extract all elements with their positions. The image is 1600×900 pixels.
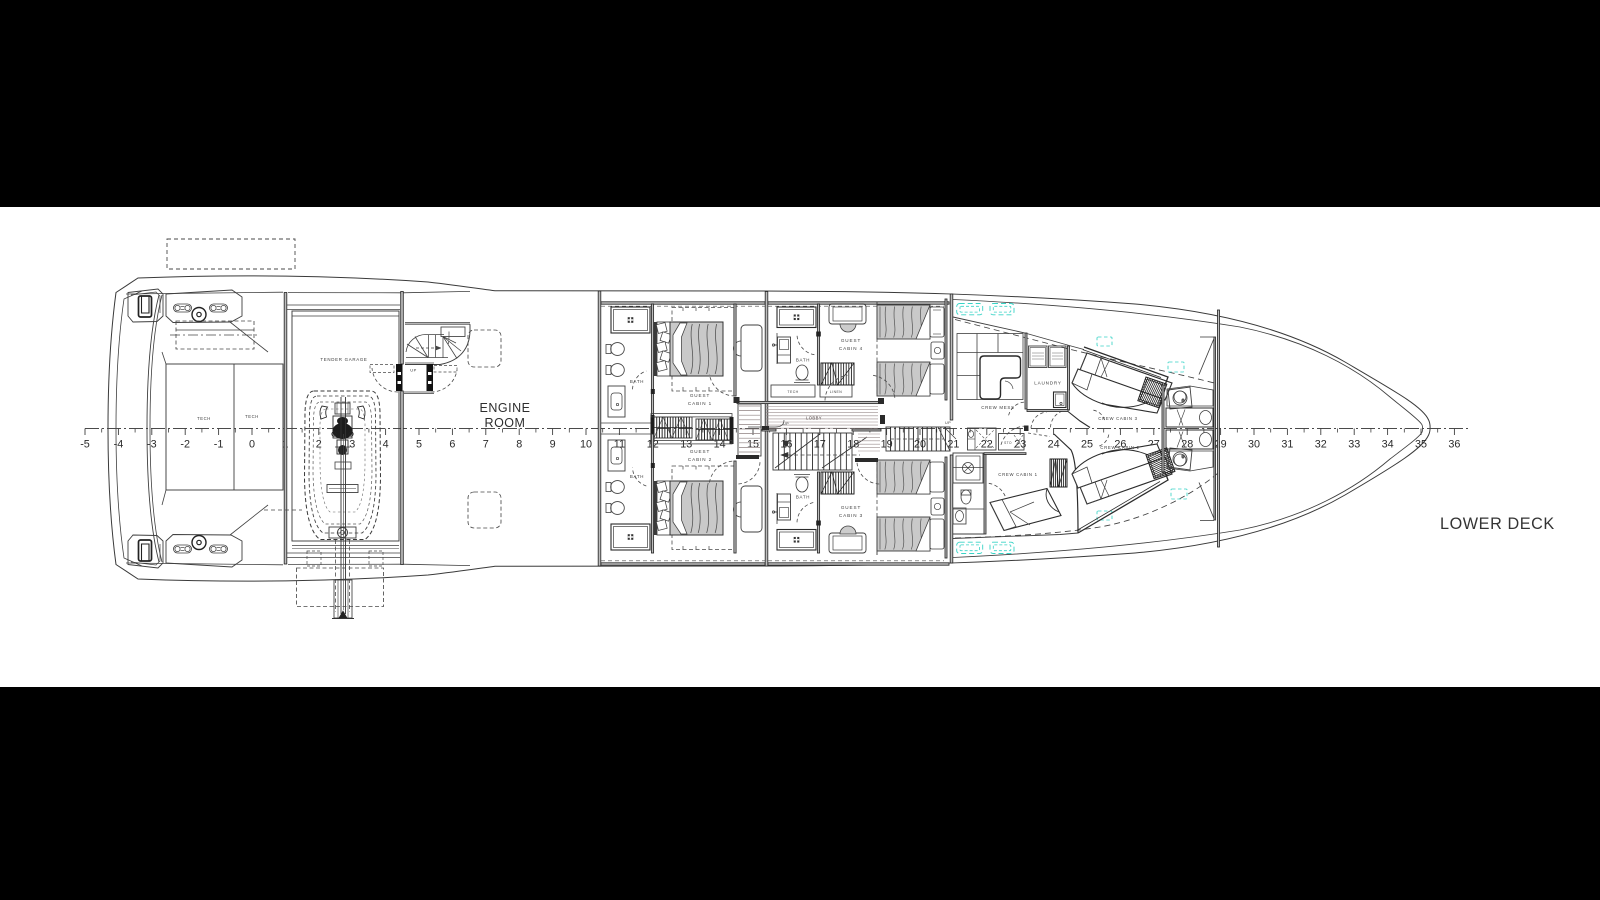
- svg-text:CABIN 4: CABIN 4: [839, 346, 863, 351]
- svg-text:35: 35: [1415, 439, 1427, 451]
- svg-text:-2: -2: [180, 439, 190, 451]
- svg-text:UP: UP: [410, 368, 417, 373]
- svg-text:24: 24: [1048, 439, 1060, 451]
- svg-text:5: 5: [416, 439, 422, 451]
- svg-text:TECH: TECH: [245, 414, 259, 419]
- svg-text:3: 3: [349, 439, 355, 451]
- svg-text:-3: -3: [147, 439, 157, 451]
- svg-text:BATH: BATH: [796, 358, 810, 363]
- svg-text:BATH: BATH: [630, 474, 644, 479]
- svg-text:GUEST: GUEST: [841, 505, 861, 510]
- svg-text:GUEST: GUEST: [690, 449, 710, 454]
- svg-text:CABIN 3: CABIN 3: [839, 513, 863, 518]
- svg-text:LAUNDRY: LAUNDRY: [1034, 381, 1061, 386]
- svg-text:34: 34: [1382, 439, 1394, 451]
- svg-text:8: 8: [516, 439, 522, 451]
- svg-text:-1: -1: [214, 439, 224, 451]
- svg-text:GUEST: GUEST: [841, 338, 861, 343]
- svg-text:ROOM: ROOM: [485, 416, 526, 430]
- svg-text:22: 22: [981, 439, 993, 451]
- svg-text:GUEST: GUEST: [690, 393, 710, 398]
- svg-text:20: 20: [914, 439, 926, 451]
- svg-text:BATH: BATH: [796, 495, 810, 500]
- svg-text:ENGINE: ENGINE: [480, 401, 531, 415]
- svg-text:TECH: TECH: [197, 416, 211, 421]
- svg-text:9: 9: [550, 439, 556, 451]
- svg-text:CREW CABIN 1: CREW CABIN 1: [998, 472, 1037, 477]
- svg-text:TECH: TECH: [787, 390, 798, 394]
- svg-text:CREW CABIN 2: CREW CABIN 2: [1100, 445, 1139, 450]
- svg-text:STO: STO: [1004, 441, 1012, 445]
- svg-text:18: 18: [847, 439, 859, 451]
- svg-text:29: 29: [1215, 439, 1227, 451]
- svg-text:33: 33: [1348, 439, 1360, 451]
- svg-text:-5: -5: [80, 439, 90, 451]
- svg-text:BATH: BATH: [630, 379, 644, 384]
- svg-text:LOWER DECK: LOWER DECK: [1440, 515, 1555, 533]
- svg-text:-4: -4: [114, 439, 124, 451]
- svg-text:0: 0: [249, 439, 255, 451]
- svg-text:LINEN: LINEN: [830, 390, 843, 394]
- svg-text:LOBBY: LOBBY: [806, 416, 822, 421]
- svg-text:CABIN 2: CABIN 2: [688, 457, 712, 462]
- svg-text:CABIN 1: CABIN 1: [688, 401, 712, 406]
- svg-text:4: 4: [383, 439, 389, 451]
- svg-text:UP: UP: [945, 421, 951, 425]
- svg-text:7: 7: [483, 439, 489, 451]
- svg-text:31: 31: [1281, 439, 1293, 451]
- svg-text:10: 10: [580, 439, 592, 451]
- svg-text:CREW MESS: CREW MESS: [981, 405, 1014, 410]
- svg-text:30: 30: [1248, 439, 1260, 451]
- svg-text:TENDER GARAGE: TENDER GARAGE: [320, 357, 367, 362]
- svg-text:25: 25: [1081, 439, 1093, 451]
- svg-text:36: 36: [1448, 439, 1460, 451]
- svg-text:2: 2: [316, 439, 322, 451]
- svg-text:32: 32: [1315, 439, 1327, 451]
- svg-text:15: 15: [747, 439, 759, 451]
- svg-text:6: 6: [449, 439, 455, 451]
- svg-text:CREW CABIN 3: CREW CABIN 3: [1098, 416, 1137, 421]
